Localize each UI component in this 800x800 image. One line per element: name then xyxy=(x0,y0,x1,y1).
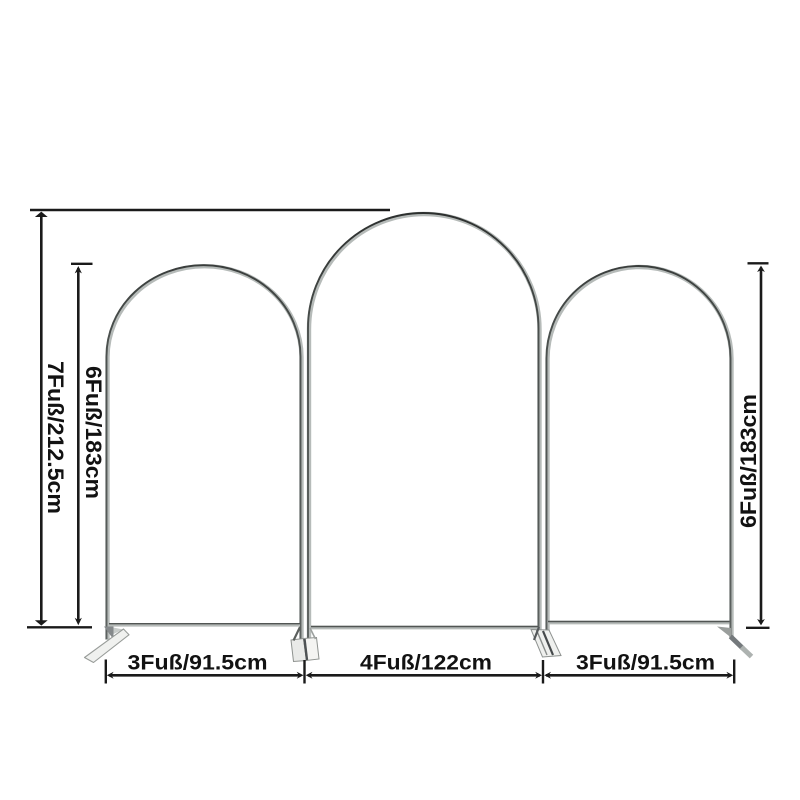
svg-text:6Fuß/183cm: 6Fuß/183cm xyxy=(736,394,761,528)
svg-text:3Fuß/91.5cm: 3Fuß/91.5cm xyxy=(128,650,268,675)
svg-text:4Fuß/122cm: 4Fuß/122cm xyxy=(360,650,492,675)
svg-text:3Fuß/91.5cm: 3Fuß/91.5cm xyxy=(576,650,715,675)
svg-text:6Fuß/183cm: 6Fuß/183cm xyxy=(81,366,106,499)
svg-text:7Fuß/212.5cm: 7Fuß/212.5cm xyxy=(43,361,68,514)
